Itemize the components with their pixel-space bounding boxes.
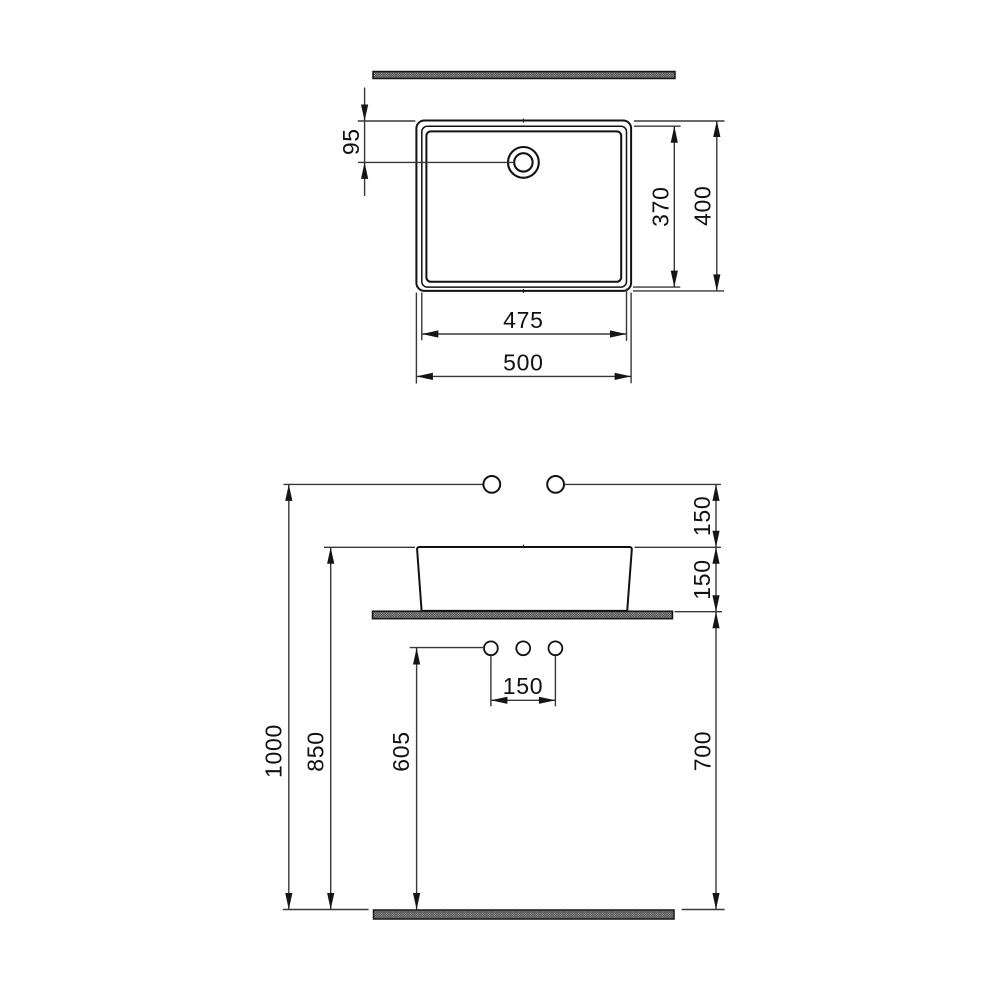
svg-text:850: 850 (302, 731, 328, 771)
svg-text:605: 605 (388, 731, 414, 771)
svg-text:1000: 1000 (260, 724, 286, 778)
svg-text:370: 370 (647, 186, 673, 226)
svg-text:95: 95 (338, 128, 364, 155)
svg-text:400: 400 (690, 185, 716, 225)
svg-text:500: 500 (503, 349, 543, 375)
svg-text:150: 150 (689, 559, 715, 599)
svg-text:475: 475 (503, 307, 543, 333)
svg-text:700: 700 (690, 731, 716, 771)
svg-text:150: 150 (689, 496, 715, 536)
svg-text:150: 150 (503, 673, 543, 699)
